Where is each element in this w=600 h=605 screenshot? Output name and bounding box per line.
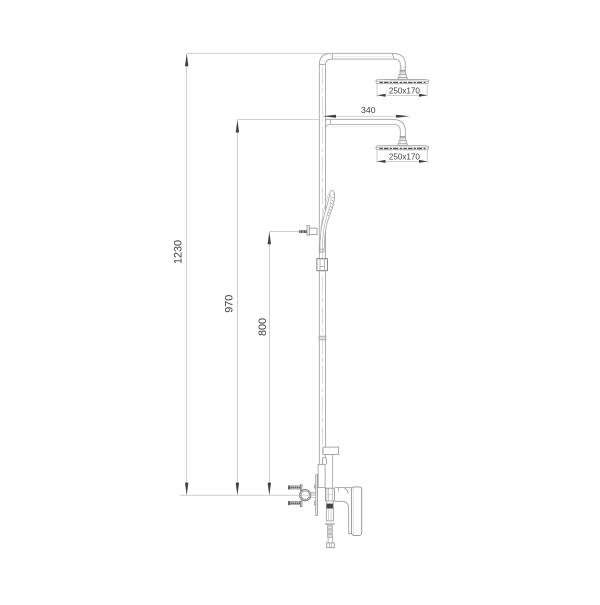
- svg-text:970: 970: [224, 295, 236, 313]
- svg-text:1230: 1230: [172, 240, 184, 264]
- svg-text:340: 340: [361, 105, 376, 115]
- svg-text:800: 800: [257, 318, 269, 336]
